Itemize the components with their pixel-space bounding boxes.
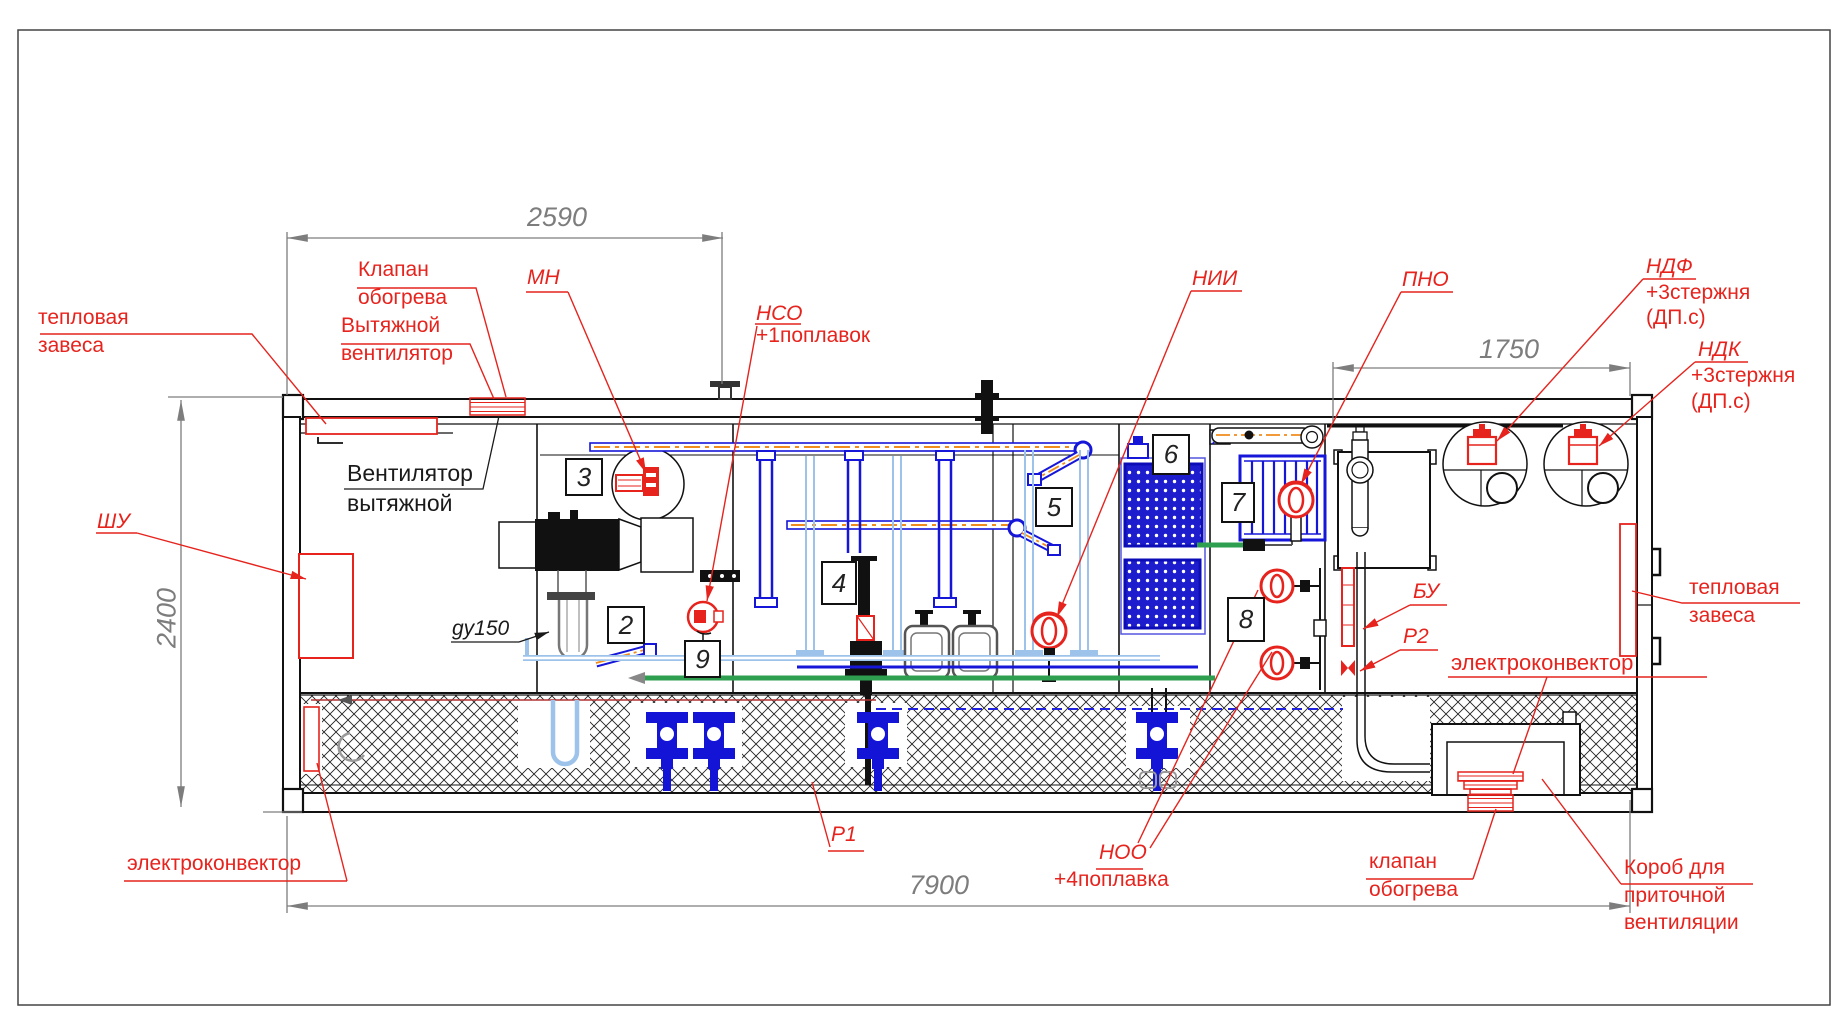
dimension-left-height: 2400 — [152, 588, 183, 648]
pump-nii-icon — [1032, 613, 1066, 682]
r2-valve — [1348, 660, 1355, 676]
label-pno: ПНО — [1402, 266, 1449, 294]
thermal-curtain-left-unit — [306, 418, 437, 434]
roof-penetration-pipe — [981, 380, 993, 434]
du150-pipe — [559, 600, 587, 659]
cad-drawing-canvas: тепловая завеса Клапан обогрева Вытяжной… — [0, 0, 1847, 1035]
label-ndf-note2: (ДП.с) — [1646, 304, 1706, 332]
label-exhaust-fan-black: Вентилятор вытяжной — [347, 458, 473, 519]
label-supply-duct: Короб для приточной вентиляции — [1624, 854, 1739, 937]
label-r2: Р2 — [1403, 623, 1429, 651]
control-cabinet-shu — [299, 554, 353, 658]
filter-tanks — [1121, 436, 1205, 712]
label-thermal-curtain-left: тепловая завеса — [38, 304, 129, 359]
label-bu: БУ — [1413, 578, 1439, 606]
room-marker-5: 5 — [1035, 487, 1073, 527]
room-marker-2: 2 — [607, 606, 645, 644]
electroconvector-left-unit — [304, 707, 319, 771]
door-hinges — [1652, 549, 1660, 664]
label-ndk-note1: +3стержня — [1691, 362, 1795, 390]
blower-unit — [535, 519, 619, 571]
dimension-top-width: 2590 — [527, 202, 587, 233]
label-ndf: НДФ — [1646, 253, 1693, 281]
room-marker-3: 3 — [565, 458, 603, 496]
roof-heating-valve — [470, 398, 525, 415]
label-mn: МН — [527, 264, 560, 292]
label-noo: НОО — [1099, 839, 1147, 867]
label-heating-valve-bottom: клапан обогрева — [1369, 848, 1458, 903]
room-marker-8: 8 — [1227, 597, 1265, 642]
label-electroconvector-right: электроконвектор — [1451, 648, 1633, 677]
dosing-pump-section — [1197, 426, 1326, 690]
dimension-right-top-width: 1750 — [1479, 334, 1539, 365]
room-marker-6: 6 — [1152, 434, 1190, 475]
label-r1: Р1 — [831, 821, 857, 849]
label-nii: НИИ — [1192, 265, 1237, 293]
label-ndf-note1: +3стержня — [1646, 279, 1750, 307]
roof-vent-pipe — [719, 387, 731, 399]
label-ndk: НДК — [1698, 336, 1740, 364]
ndf-doser — [1468, 437, 1496, 464]
room-marker-7: 7 — [1221, 482, 1255, 523]
label-heating-valve-top: Клапан обогрева — [358, 256, 447, 311]
bu-device — [1342, 568, 1354, 646]
label-noo-note: +4поплавка — [1054, 866, 1169, 894]
label-du150: gy150 — [452, 615, 509, 643]
label-shu: ШУ — [97, 508, 130, 536]
room-marker-4: 4 — [821, 561, 857, 605]
thermal-curtain-right-unit — [1620, 524, 1636, 656]
room-marker-9: 9 — [684, 640, 721, 678]
heating-valve-bottom-unit — [1468, 795, 1513, 811]
label-ndk-note2: (ДП.с) — [1691, 388, 1751, 416]
label-nso-note: +1поплавок — [756, 322, 870, 350]
label-exhaust-fan-red: Вытяжной вентилятор — [341, 312, 453, 367]
label-thermal-curtain-right: тепловая завеса — [1689, 574, 1780, 629]
du150-flange — [547, 592, 595, 600]
ndk-doser — [1569, 437, 1597, 464]
dimension-bottom-width: 7900 — [909, 870, 969, 901]
label-electroconvector-left: электроконвектор — [127, 850, 301, 878]
